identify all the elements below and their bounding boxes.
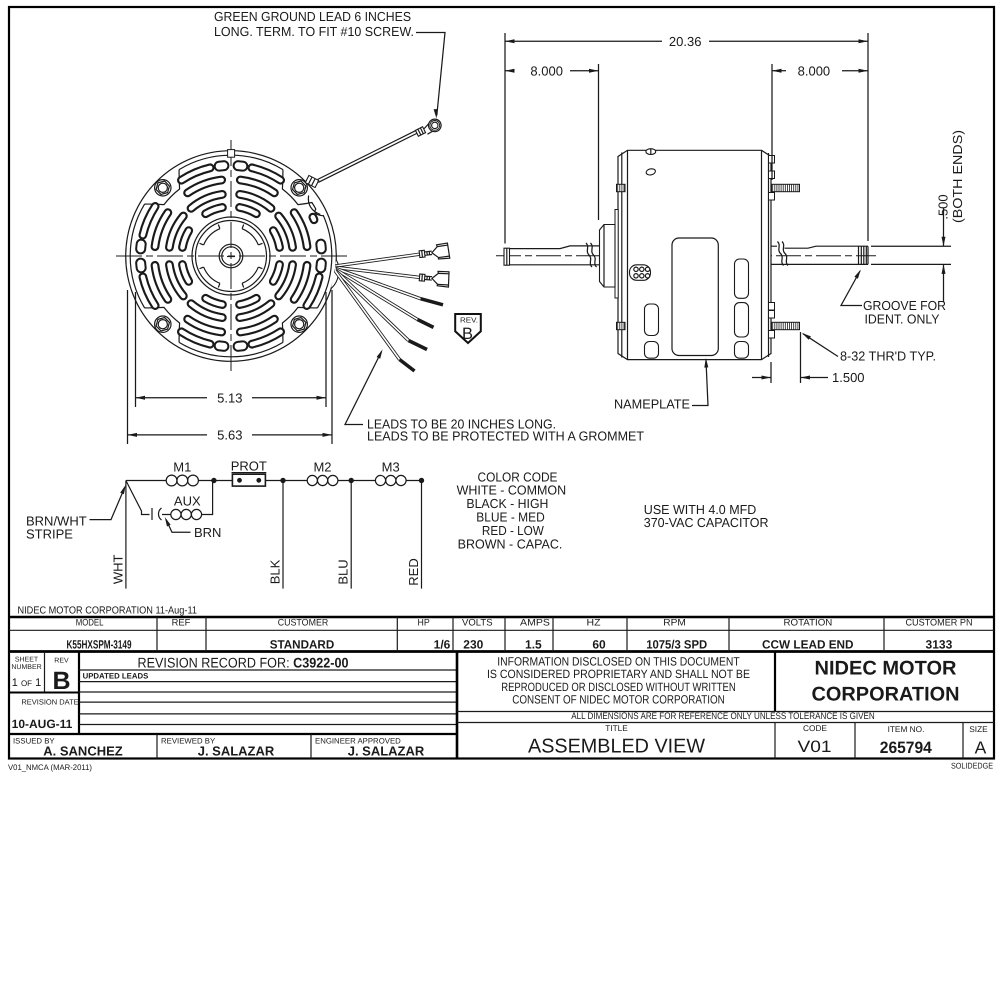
- svg-text:A: A: [975, 738, 987, 758]
- svg-text:60: 60: [592, 637, 606, 651]
- svg-text:M3: M3: [382, 460, 400, 475]
- svg-text:HP: HP: [418, 618, 430, 629]
- svg-text:1 OF 1: 1 OF 1: [12, 677, 41, 689]
- svg-text:8.000: 8.000: [530, 63, 563, 78]
- svg-text:AUX: AUX: [174, 494, 201, 509]
- svg-text:K55HXSPM-3149: K55HXSPM-3149: [67, 637, 132, 651]
- svg-text:3133: 3133: [926, 637, 953, 651]
- svg-text:(BOTH ENDS): (BOTH ENDS): [950, 130, 965, 223]
- svg-text:5.63: 5.63: [217, 428, 242, 443]
- svg-text:VOLTS: VOLTS: [462, 618, 493, 629]
- svg-text:5.13: 5.13: [217, 390, 242, 405]
- svg-text:STRIPE: STRIPE: [26, 527, 73, 542]
- svg-text:NIDEC MOTOR CORPORATION 11-Aug: NIDEC MOTOR CORPORATION 11-Aug-11: [18, 606, 198, 617]
- svg-text:370-VAC CAPACITOR: 370-VAC CAPACITOR: [644, 515, 769, 530]
- svg-text:8-32 THR'D TYP.: 8-32 THR'D TYP.: [840, 349, 936, 364]
- svg-text:NIDEC MOTOR: NIDEC MOTOR: [815, 658, 957, 680]
- svg-text:CODE: CODE: [803, 723, 827, 733]
- svg-text:MODEL: MODEL: [76, 618, 104, 629]
- svg-text:A. SANCHEZ: A. SANCHEZ: [43, 744, 123, 759]
- svg-text:PROT: PROT: [231, 459, 267, 474]
- svg-text:AMPS: AMPS: [520, 618, 550, 629]
- svg-text:.500: .500: [936, 194, 951, 219]
- svg-text:GREEN GROUND LEAD 6 INCHES: GREEN GROUND LEAD 6 INCHES: [214, 9, 411, 24]
- svg-text:CUSTOMER: CUSTOMER: [278, 618, 329, 629]
- svg-text:1.5: 1.5: [525, 637, 542, 651]
- svg-text:BROWN - CAPAC.: BROWN - CAPAC.: [458, 536, 563, 551]
- svg-text:CCW LEAD END: CCW LEAD END: [762, 637, 854, 651]
- svg-text:SHEET: SHEET: [15, 657, 39, 664]
- svg-text:WHT: WHT: [110, 554, 125, 584]
- svg-text:REF: REF: [172, 618, 191, 629]
- svg-text:B: B: [462, 325, 473, 343]
- svg-text:REVISION DATE: REVISION DATE: [21, 698, 78, 707]
- svg-text:RED: RED: [406, 558, 421, 585]
- svg-text:230: 230: [463, 637, 483, 651]
- svg-text:REV.: REV.: [460, 315, 478, 324]
- svg-text:HZ: HZ: [587, 618, 601, 629]
- svg-text:1/6: 1/6: [434, 637, 451, 651]
- svg-text:TITLE: TITLE: [605, 723, 628, 733]
- svg-text:NUMBER: NUMBER: [11, 664, 41, 671]
- svg-text:REVISION RECORD FOR: C3922-00: REVISION RECORD FOR: C3922-00: [138, 655, 349, 671]
- svg-text:10-AUG-11: 10-AUG-11: [12, 717, 73, 731]
- svg-text:ASSEMBLED VIEW: ASSEMBLED VIEW: [528, 736, 705, 758]
- svg-text:ROTATION: ROTATION: [784, 618, 833, 629]
- svg-text:CONSENT OF NIDEC MOTOR CORPORA: CONSENT OF NIDEC MOTOR CORPORATION: [512, 693, 725, 707]
- svg-text:J. SALAZAR: J. SALAZAR: [348, 744, 425, 759]
- svg-text:IDENT. ONLY: IDENT. ONLY: [865, 311, 940, 326]
- svg-text:265794: 265794: [880, 739, 933, 757]
- svg-text:8.000: 8.000: [798, 63, 831, 78]
- svg-text:B: B: [52, 667, 70, 695]
- svg-text:STANDARD: STANDARD: [270, 637, 335, 651]
- svg-text:SOLIDEDGE: SOLIDEDGE: [951, 761, 993, 771]
- svg-text:J. SALAZAR: J. SALAZAR: [198, 744, 275, 759]
- svg-text:V01: V01: [798, 738, 832, 756]
- svg-text:1075/3 SPD: 1075/3 SPD: [646, 637, 707, 651]
- svg-text:RPM: RPM: [663, 618, 686, 629]
- svg-text:BLU: BLU: [336, 559, 351, 584]
- svg-text:ITEM NO.: ITEM NO.: [888, 724, 925, 734]
- svg-text:20.36: 20.36: [669, 34, 702, 49]
- svg-text:SIZE: SIZE: [969, 724, 988, 734]
- svg-text:CORPORATION: CORPORATION: [812, 684, 960, 706]
- svg-text:M2: M2: [313, 460, 331, 475]
- svg-text:LEADS TO BE PROTECTED WITH A G: LEADS TO BE PROTECTED WITH A GROMMET: [367, 429, 644, 444]
- svg-text:LONG. TERM. TO FIT #10 SCREW.: LONG. TERM. TO FIT #10 SCREW.: [214, 24, 414, 39]
- svg-text:NAMEPLATE: NAMEPLATE: [614, 397, 690, 412]
- svg-text:M1: M1: [173, 460, 191, 475]
- svg-text:ALL DIMENSIONS ARE FOR REFEREN: ALL DIMENSIONS ARE FOR REFERENCE ONLY UN…: [571, 711, 875, 722]
- svg-text:BLK: BLK: [267, 559, 282, 584]
- svg-text:CUSTOMER PN: CUSTOMER PN: [905, 618, 972, 629]
- svg-text:BRN: BRN: [194, 525, 221, 540]
- svg-text:UPDATED LEADS: UPDATED LEADS: [83, 672, 149, 681]
- svg-text:1.500: 1.500: [832, 370, 865, 385]
- svg-text:REV: REV: [54, 658, 69, 665]
- svg-text:V01_NMCA (MAR-2011): V01_NMCA (MAR-2011): [8, 763, 92, 772]
